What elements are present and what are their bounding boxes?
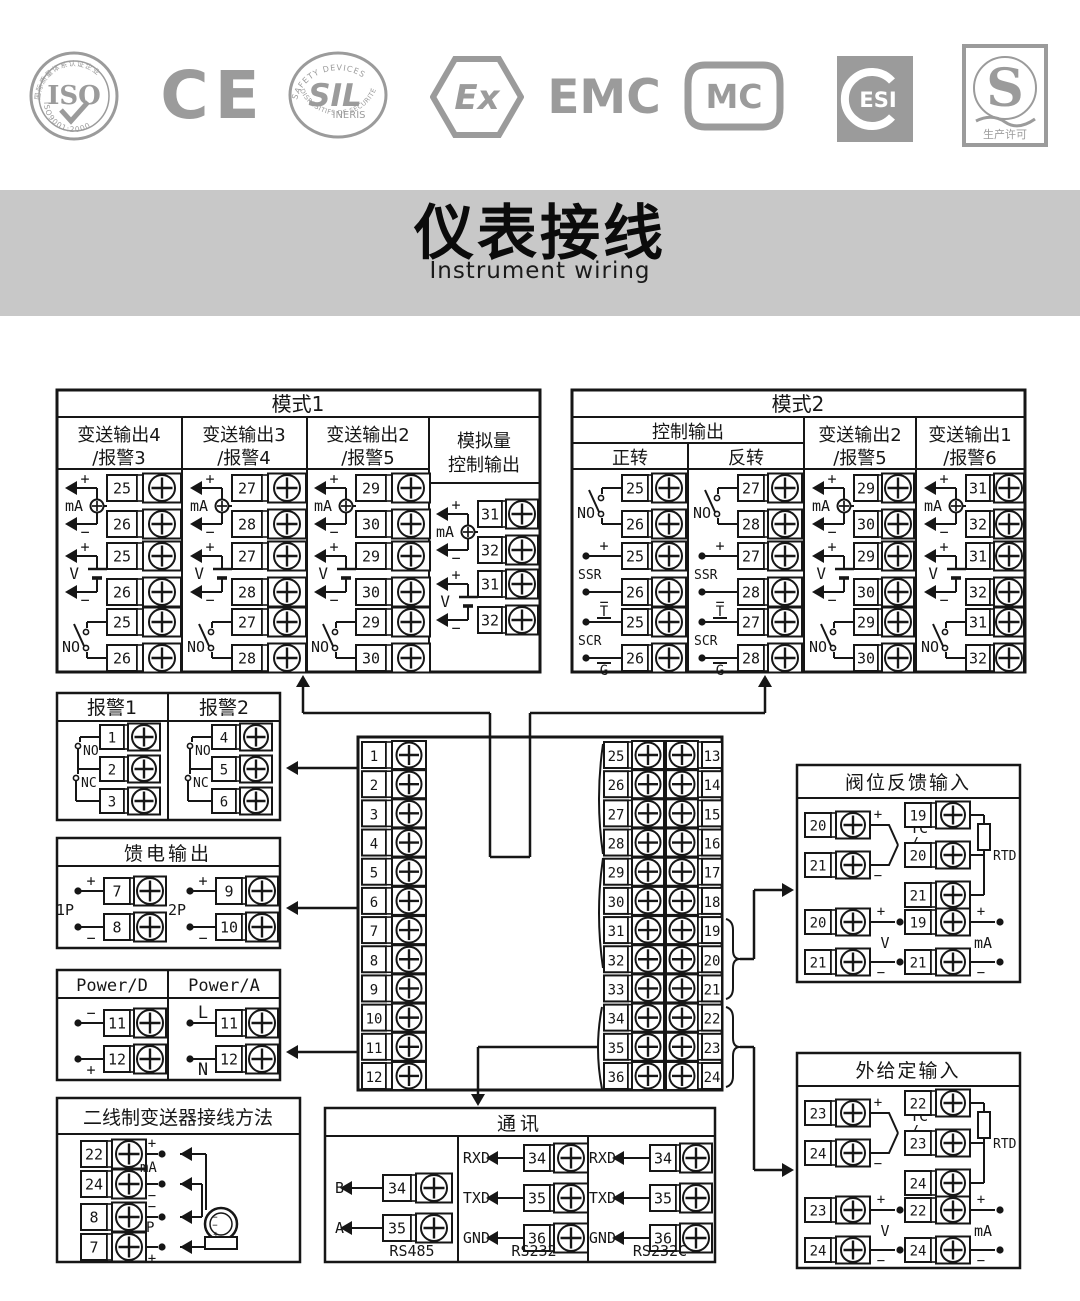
arrow-left-icon [65,585,77,599]
diagram-label: NO [809,638,827,656]
diagram-label: + [205,538,214,556]
diagram-label: SSR [694,568,718,583]
terminal-number: 30 [857,650,875,668]
terminal-number: 23 [704,1041,721,1057]
terminal-number: 28 [608,837,625,853]
terminal-number: 1 [370,749,378,765]
terminal-number: 7 [112,883,121,901]
diagram-label: + [939,538,948,556]
diagram-label: − [148,1199,156,1215]
comm-title: 通讯 [497,1113,543,1135]
terminal-number: 3 [108,795,116,811]
terminal-number: 9 [370,982,378,998]
terminal-number: 24 [910,1244,927,1260]
group-NO: NO2930 [311,608,430,673]
feed-group: LN1112 [186,1003,278,1080]
terminal-number: 20 [910,849,927,865]
diagram-label: N [198,1060,208,1080]
group-mA: +−mA3132 [436,496,538,567]
diagram-label: − [329,591,338,609]
power-a-header: Power/A [188,976,260,996]
group-NO: NO2728 [187,608,306,673]
terminal-number: 26 [113,650,131,668]
terminal-number: 25 [626,548,644,566]
diagram-label: + [877,1192,885,1208]
terminal-number: 29 [362,614,380,632]
diagram-label: − [874,1156,882,1172]
column-header: /报警6 [943,448,997,469]
group-SCR: TSCRG2526 [578,604,686,679]
group-V: +−V2728 [190,538,306,609]
terminal-number: 28 [238,516,256,534]
terminal-number: 4 [370,837,378,853]
arrow-left-icon [65,481,77,495]
terminal-number: 22 [85,1146,103,1164]
ma-label: mA [974,934,992,952]
ma-label: mA [140,1160,157,1176]
group-V: +−V3132 [924,538,1024,609]
arrow-left-icon [436,507,448,521]
terminal-number: 6 [370,895,378,911]
terminal-number: 7 [370,924,378,940]
terminal-number: 24 [810,1147,827,1163]
terminal-number: 27 [742,480,760,498]
terminal-number: 26 [113,516,131,534]
group-V: +−V3132 [436,566,538,637]
terminal-number: 32 [969,584,987,602]
terminal-number: 1 [108,731,116,747]
terminal-number: 30 [362,650,380,668]
diagram-label: − [977,965,985,981]
diagram-label: − [86,1004,95,1022]
rtd-label: RTD [993,849,1017,864]
terminal-number: 26 [626,516,644,534]
arrow-left-icon [190,481,202,495]
diagram-label: V [928,564,938,583]
terminal-number: 21 [810,859,827,875]
feed-output-box: 馈电输出+−1P78+−2P910 [56,838,280,948]
column-header: 变送输出2 [326,425,409,446]
terminal-number: 31 [481,576,499,594]
comm-signal-label: RXD [589,1149,616,1167]
diagram-label: NO [83,744,99,759]
terminal-number: 9 [224,883,233,901]
terminal-number: 25 [626,480,644,498]
diagram-label: + [827,538,836,556]
terminal-number: 25 [113,480,131,498]
diagram-label: V [318,564,328,583]
diagram-label: + [874,1095,882,1111]
terminal-number: 29 [362,480,380,498]
group-mA: +−mA2728 [190,470,306,541]
terminal-number: 34 [528,1150,546,1168]
terminal-number: 3 [370,807,378,823]
terminal-number: 35 [654,1190,672,1208]
terminal-number: 26 [626,584,644,602]
diagram-label: mA [436,523,454,541]
diagram-label: + [827,470,836,488]
terminal-number: 27 [608,807,625,823]
terminal-number: 25 [626,614,644,632]
terminal-number: 14 [704,778,721,794]
terminal-number: 30 [362,516,380,534]
terminal-number: 20 [810,819,827,835]
group-NO: NO2526 [577,474,686,539]
terminal-number: 30 [362,584,380,602]
diagram-label: + [451,566,460,584]
diagram-label: + [148,1251,156,1267]
comm-signal-label: TXD [463,1189,490,1207]
group-SSR: +SSR−2526 [578,537,686,611]
diagram-label: − [451,549,460,567]
arrow-right-icon [782,883,794,897]
terminal-number: 22 [704,1012,721,1028]
diagram-label: mA [812,497,830,515]
column-header: 反转 [728,448,764,469]
group-V: +−V2526 [65,538,181,609]
terminal-number: 30 [857,516,875,534]
alarm-box: 报警1报警2NONC123NONC456 [57,693,280,820]
arrow-left-icon [436,543,448,557]
diagram-label: − [939,591,948,609]
terminal-number: 27 [238,548,256,566]
terminal-number: 19 [704,924,721,940]
comm-signal-label: GND [589,1229,616,1247]
group-V: +−V2930 [812,538,914,609]
wiring-diagram: 模式1变送输出4/报警3变送输出3/报警4变送输出2/报警5模拟量控制输出+−m… [0,0,1080,1301]
group-mA: +−mA2930 [314,470,430,541]
two-wire-box: 二线制变送器接线方法22+24−8−7+mAP−−+ [57,1098,300,1267]
mode2-title: 模式2 [772,392,825,416]
column-header: /报警4 [217,448,271,469]
terminal-number: 31 [969,480,987,498]
arrow-left-icon [65,517,77,531]
diagram-label: NC [193,776,209,791]
diagram-label: NO [693,504,711,522]
power-box: Power/DPower/A−+1112LN1112 [57,970,280,1080]
terminal-number: 31 [969,614,987,632]
diagram-label: + [451,496,460,514]
diagram-label: − [451,619,460,637]
terminal-number: 29 [857,480,875,498]
group-NO: NO3132 [921,608,1024,673]
terminal-number: 10 [366,1012,383,1028]
terminal-number: 5 [370,866,378,882]
terminal-number: 27 [238,614,256,632]
p-label: P [146,1220,154,1236]
arrow-left-icon [924,481,936,495]
terminal-number: 27 [742,548,760,566]
terminal-number: 2 [370,778,378,794]
terminal-number: 27 [238,480,256,498]
diagram-label: − [874,868,882,884]
terminal-number: 26 [113,584,131,602]
terminal-number: 32 [969,650,987,668]
diagram-label: + [977,1192,985,1208]
group-mA: +−mA2930 [812,470,914,541]
column-header: /报警5 [833,448,887,469]
diagram-label: − [827,591,836,609]
terminal-number: 25 [113,548,131,566]
diagram-label: V [440,592,450,611]
comm-signal-label: A [335,1219,344,1237]
two-wire-title: 二线制变送器接线方法 [83,1107,273,1129]
terminal-number: 12 [108,1051,126,1069]
terminal-number: 21 [704,982,721,998]
arrow-left-icon [812,517,824,531]
group-NO: NO2526 [62,608,181,673]
alarm-relay-group: NONC456 [185,724,272,815]
arrow-left-icon [924,549,936,563]
terminal-number: 32 [969,516,987,534]
terminal-number: 11 [108,1015,126,1033]
terminal-number: 34 [388,1180,406,1198]
mode2-box: 模式2控制输出正转反转变送输出2/报警5变送输出1/报警6NO2526+SSR−… [572,390,1025,679]
comm-box: 通讯34B35ARS48534RXD35TXD36GNDRS23234RXD35… [325,1108,715,1262]
diagram-label: + [86,1061,95,1079]
comm-caption: RS485 [389,1242,434,1260]
terminal-number: 2 [108,763,116,779]
diagram-label: mA [190,497,208,515]
column-header: 变送输出4 [77,425,160,446]
arrow-left-icon [812,481,824,495]
mode1-box: 模式1变送输出4/报警3变送输出3/报警4变送输出2/报警5模拟量控制输出+−m… [57,390,540,673]
comm-signal-label: TXD [589,1189,616,1207]
terminal-number: 13 [704,749,721,765]
terminal-number: 27 [742,614,760,632]
arrow-left-icon [314,481,326,495]
terminal-number: 26 [626,650,644,668]
alarm-relay-group: NONC123 [73,724,160,815]
terminal-number: 22 [910,1204,927,1220]
terminal-number: 11 [366,1041,383,1057]
diagram-label: + [329,538,338,556]
terminal-number: 20 [704,953,721,969]
terminal-number: 25 [608,749,625,765]
diagram-label: 2P [168,901,186,919]
terminal-number: 16 [704,837,721,853]
arrow-left-icon [436,577,448,591]
arrow-right-icon [782,1163,794,1177]
terminal-number: 28 [742,650,760,668]
feed-title: 馈电输出 [124,843,212,865]
column-header: 变送输出2 [818,425,901,446]
arrow-left-icon [190,585,202,599]
column-header: 变送输出1 [928,425,1011,446]
terminal-number: 32 [481,612,499,630]
diagram-label: + [80,538,89,556]
arrow-left-icon [190,549,202,563]
arrow-left-icon [436,613,448,627]
arrow-left-icon [314,585,326,599]
group-mA: +−mA3132 [924,470,1024,541]
column-header: /报警3 [92,448,146,469]
terminal-number: 21 [810,956,827,972]
v-label: V [880,1222,889,1240]
column-header: 正转 [612,448,648,469]
alarm1-header: 报警1 [87,697,137,719]
terminal-number: 29 [857,614,875,632]
rtd-label: RTD [993,1137,1017,1152]
valve-feedback-box-title: 阀位反馈输入 [845,772,971,794]
terminal-number: 4 [220,731,228,747]
group-SSR: +SSR−2728 [694,537,802,611]
terminal-number: 12 [220,1051,238,1069]
alarm2-header: 报警2 [199,697,249,719]
center-terminal-block: 1234567891011122513261427152816291730183… [358,737,740,1090]
arrow-left-icon [812,549,824,563]
diagram-label: mA [314,497,332,515]
valve-feedback-box: 阀位反馈输入2021+−TC/mV192021RTD2021+V−1921+mA… [797,765,1020,982]
terminal-number: 24 [85,1176,103,1194]
control-output-header: 控制输出 [652,422,724,443]
diagram-label: NO [187,638,205,656]
diagram-label: V [194,564,204,583]
terminal-number: 29 [857,548,875,566]
diagram-label: mA [65,497,83,515]
terminal-number: 23 [810,1107,827,1123]
terminal-number: 26 [608,778,625,794]
terminal-number: 23 [910,1137,927,1153]
column-header: /报警5 [341,448,395,469]
group-NO: NO2930 [809,608,914,673]
diagram-label: + [148,1136,156,1152]
diagram-label: SCR [694,634,718,649]
terminal-number: 28 [238,650,256,668]
terminal-number: 10 [220,919,238,937]
diagram-label: + [877,904,885,920]
terminal-number: 31 [481,506,499,524]
group-mA: +−mA2526 [65,470,181,541]
terminal-number: 7 [89,1239,98,1257]
arrow-down-icon [471,1094,485,1106]
ma-label: mA [974,1222,992,1240]
terminal-number: 17 [704,866,721,882]
feed-group: +−2P910 [168,872,278,947]
arrow-up-icon [758,675,772,687]
diagram-label: SCR [578,634,602,649]
arrow-left-icon [286,901,298,915]
terminal-number: 31 [969,548,987,566]
arrow-left-icon [924,517,936,531]
column-header: 模拟量 [457,431,511,452]
terminal-number: 6 [220,795,228,811]
diagram-label: 1P [56,901,74,919]
diagram-label: NO [195,744,211,759]
terminal-number: 22 [910,1097,927,1113]
diagram-label: − [80,591,89,609]
diagram-label: + [874,807,882,823]
diagram-label: + [939,470,948,488]
terminal-number: 30 [608,895,625,911]
terminal-number: 28 [742,516,760,534]
comm-signal-label: RXD [463,1149,490,1167]
terminal-number: 18 [704,895,721,911]
diagram-label: + [205,470,214,488]
group-NO: NO2728 [693,474,802,539]
arrow-left-icon [65,549,77,563]
diagram-label: SSR [578,568,602,583]
diagram-label: − [198,929,207,947]
comm-caption: RS232 [511,1242,556,1260]
terminal-number: 35 [528,1190,546,1208]
diagram-label: − [977,1253,985,1269]
comm-caption: RS232C [633,1242,687,1260]
diagram-label: NO [577,504,595,522]
arrow-up-icon [296,675,310,687]
arrow-left-icon [190,517,202,531]
diagram-label: G [600,663,608,679]
terminal-number: 35 [608,1041,625,1057]
external-setpoint-box-title: 外给定输入 [855,1060,960,1082]
power-d-header: Power/D [76,976,148,996]
terminal-number: 35 [388,1220,406,1238]
arrow-left-icon [924,585,936,599]
comm-signal-label: B [335,1179,344,1197]
diagram-label: L [198,1003,208,1023]
diagram-label: + [198,872,207,890]
terminal-number: 21 [910,889,927,905]
diagram-label: + [599,537,608,555]
page: 国际质量体系认证企业 ISO ISO9001:2000 CE SAFETY DE… [0,0,1080,1301]
terminal-number: 24 [704,1070,721,1086]
arrow-left-icon [314,517,326,531]
terminal-number: 19 [910,809,927,825]
terminal-number: 23 [810,1204,827,1220]
terminal-number: 36 [608,1070,625,1086]
terminal-number: 8 [370,953,378,969]
comm-section: 34B35ARS485 [335,1174,452,1261]
terminal-number: 32 [608,953,625,969]
diagram-label: − [86,929,95,947]
diagram-label: + [80,470,89,488]
comm-section: 34RXD35TXD36GNDRS232 [463,1144,588,1261]
feed-group: +−1P78 [56,872,166,947]
terminal-number: 31 [608,924,625,940]
column-header: 变送输出3 [202,425,285,446]
diagram-label: V [69,564,79,583]
terminal-number: 19 [910,916,927,932]
diagram-label: + [715,537,724,555]
diagram-label: − [877,1253,885,1269]
terminal-number: 29 [608,866,625,882]
v-label: V [880,934,889,952]
diagram-label: G [716,663,724,679]
feed-group: −+1112 [74,1004,166,1079]
diagram-label: V [816,564,826,583]
diagram-label: NO [921,638,939,656]
terminal-number: 25 [113,614,131,632]
arrow-left-icon [286,1045,298,1059]
terminal-number: 30 [857,584,875,602]
mode1-title: 模式1 [272,392,325,416]
diagram-label: + [977,904,985,920]
arrow-left-icon [812,585,824,599]
diagram-label: NO [311,638,329,656]
terminal-number: 12 [366,1070,383,1086]
arrow-left-icon [314,549,326,563]
terminal-number: 15 [704,807,721,823]
group-V: +−V2930 [314,538,430,609]
terminal-number: 24 [910,1177,927,1193]
terminal-number: 5 [220,763,228,779]
terminal-number: 24 [810,1244,827,1260]
terminal-number: 33 [608,982,625,998]
diagram-label: + [329,470,338,488]
terminal-number: 21 [910,956,927,972]
terminal-number: 11 [220,1015,238,1033]
terminal-number: 28 [742,584,760,602]
